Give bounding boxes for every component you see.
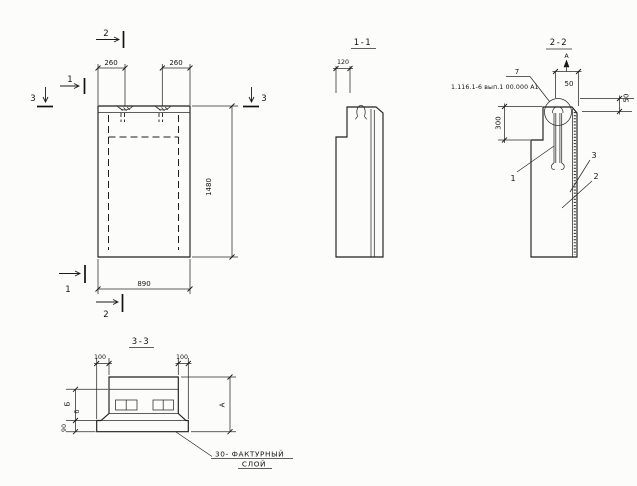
dim-A-label: А — [219, 402, 227, 407]
facing-layer-note-line1: 30- ФАКТУРНЫЙ — [215, 450, 284, 459]
section-2-2-lifting-loop — [551, 107, 564, 170]
section-marker-2-top-label: 2 — [103, 29, 108, 39]
section-marker-3-right-label: 3 — [261, 94, 266, 104]
section-2-2-view: 2-2 7 1.116.1-6 вып.1 00.000 А1 А — [451, 38, 634, 257]
section-marker-2-bottom: 2 — [96, 294, 123, 320]
technical-drawing-canvas: 260 260 1480 890 2 1 3 3 — [0, 0, 637, 486]
position-1-label: 1 — [510, 174, 515, 183]
dim-260-right-label: 260 — [169, 59, 182, 67]
panel-outline — [98, 106, 190, 257]
detail-callout: 7 1.116.1-6 вып.1 00.000 А1 — [451, 68, 550, 102]
dim-100-right-label: 100 — [176, 354, 188, 361]
ext-lines-left-dims — [66, 389, 108, 431]
section-marker-3-left-label: 3 — [30, 94, 35, 104]
dim-300-label: 300 — [495, 116, 503, 129]
position-leader-1: 1 — [510, 146, 554, 183]
section-marker-1-top: 1 — [60, 75, 85, 94]
position-2-label: 2 — [593, 172, 598, 181]
section-2-2-title: 2-2 — [550, 38, 568, 48]
loop-legs-hidden-right — [159, 113, 163, 122]
dim-50-top-label: 50 — [565, 80, 574, 88]
section-1-1-profile — [336, 107, 383, 257]
ext-lines-50-top — [556, 72, 579, 107]
section-3-3-view: 3-3 100 100 Б б 90 А — [61, 337, 293, 469]
ext-lines-1480 — [192, 106, 238, 257]
facing-layer-note: 30- ФАКТУРНЫЙ СЛОЙ — [176, 432, 293, 469]
dim-260-left-label: 260 — [104, 59, 117, 67]
section-marker-2-bottom-label: 2 — [103, 310, 108, 320]
view-mark-A-label: А — [564, 53, 569, 60]
detail-number-label: 7 — [515, 68, 519, 76]
dim-890-label: 890 — [137, 280, 150, 288]
section-3-3-channel-right — [153, 400, 174, 410]
section-1-1-view: 1-1 120 — [333, 38, 383, 257]
loop-legs-hidden-left — [121, 113, 125, 122]
front-view: 260 260 1480 890 2 1 3 3 — [30, 29, 266, 320]
dim-120-label: 120 — [337, 59, 349, 66]
ext-lines-260 — [98, 64, 190, 106]
section-marker-3-right: 3 — [243, 87, 267, 107]
dim-100-left-label: 100 — [94, 354, 106, 361]
ext-lines-100 — [97, 358, 189, 419]
section-marker-2-top: 2 — [96, 29, 124, 48]
view-mark-A: А — [564, 53, 570, 72]
section-1-1-title: 1-1 — [354, 38, 372, 48]
section-marker-1-bottom-label: 1 — [65, 285, 70, 295]
dim-B-label: Б — [64, 401, 72, 406]
position-leader-2: 2 — [562, 172, 599, 208]
facing-layer-note-line2: СЛОЙ — [242, 460, 266, 469]
section-marker-3-left: 3 — [30, 87, 53, 107]
section-1-1-facing-lines — [371, 109, 374, 257]
dim-1480-label: 1480 — [205, 178, 213, 196]
dim-b-label: б — [73, 409, 81, 413]
facing-layer-note-leader — [176, 432, 212, 457]
section-3-3-channel-left — [116, 400, 138, 410]
dim-50-right-label: 50 — [623, 94, 631, 103]
view-mark-A-arrow — [564, 60, 570, 68]
section-marker-1-bottom: 1 — [59, 265, 85, 295]
ext-lines-A — [181, 377, 236, 432]
drawing-sheet: 260 260 1480 890 2 1 3 3 — [0, 0, 637, 486]
detail-circle — [545, 99, 572, 126]
dim-90-label: 90 — [61, 424, 68, 432]
section-3-3-title: 3-3 — [132, 337, 150, 347]
position-3-label: 3 — [591, 151, 596, 160]
section-3-3-profile — [97, 377, 189, 432]
detail-ref-label: 1.116.1-6 вып.1 00.000 А1 — [451, 84, 539, 91]
section-marker-1-top-label: 1 — [67, 75, 72, 85]
